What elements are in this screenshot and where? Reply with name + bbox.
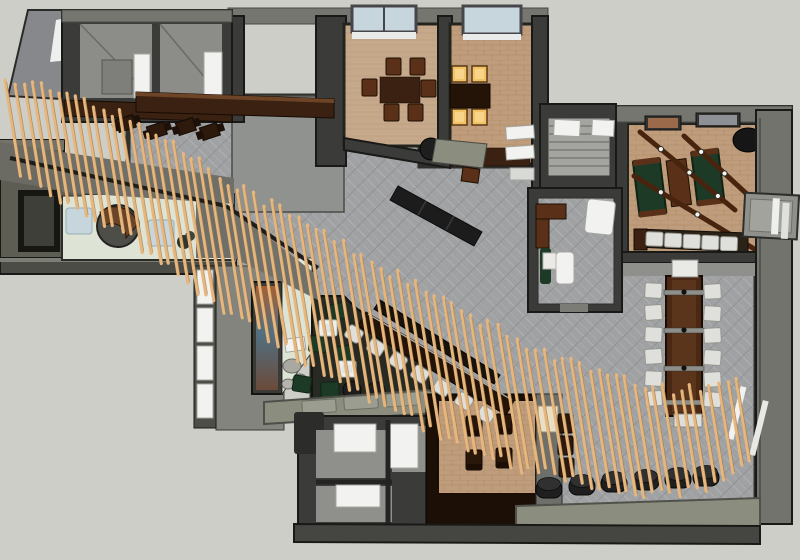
shelf-steps [102, 60, 132, 94]
white-table [584, 199, 615, 236]
vestibule [743, 193, 799, 240]
host-stand [672, 260, 698, 277]
door-mat [592, 119, 615, 136]
dining-table-room1 [380, 77, 420, 103]
pass-door [510, 168, 534, 180]
east-wall [756, 110, 792, 524]
host-chair [461, 167, 480, 183]
white-table [556, 252, 574, 284]
skylight-sill [352, 32, 416, 39]
counter-unit [204, 52, 222, 96]
counter-unit [134, 54, 150, 98]
room1-west-wall [316, 16, 346, 166]
wc-fixture [336, 485, 380, 507]
side-stool [543, 253, 556, 269]
skylight-2 [463, 6, 521, 34]
table-lamp-icon [681, 327, 686, 332]
door-panel [197, 308, 213, 342]
skylight-sill [463, 34, 521, 40]
table-lamp-icon [681, 289, 686, 294]
door-panel [197, 346, 213, 380]
south-perimeter-wall [294, 524, 760, 544]
door-gap [560, 304, 588, 312]
pass-door [506, 145, 535, 160]
l-sofa-arm [536, 204, 566, 219]
dining-table-room2 [450, 84, 490, 108]
picture-art [648, 118, 678, 128]
table-lamp-icon [681, 365, 686, 370]
door-mat [554, 119, 581, 136]
upper-left-wall-top [62, 10, 232, 22]
floorplan-stage [0, 0, 800, 560]
picture-art [699, 115, 737, 125]
wc-fixture [334, 424, 376, 452]
communal-table-top [672, 280, 696, 412]
floorplan-render [0, 0, 800, 560]
pass-door [506, 125, 535, 140]
games-bar-shelf [634, 229, 647, 250]
entry-door-inner [24, 196, 54, 246]
glass-table [66, 208, 92, 234]
wc-fixture [390, 424, 418, 468]
meeting-room [528, 188, 622, 312]
door-panel [197, 384, 213, 418]
